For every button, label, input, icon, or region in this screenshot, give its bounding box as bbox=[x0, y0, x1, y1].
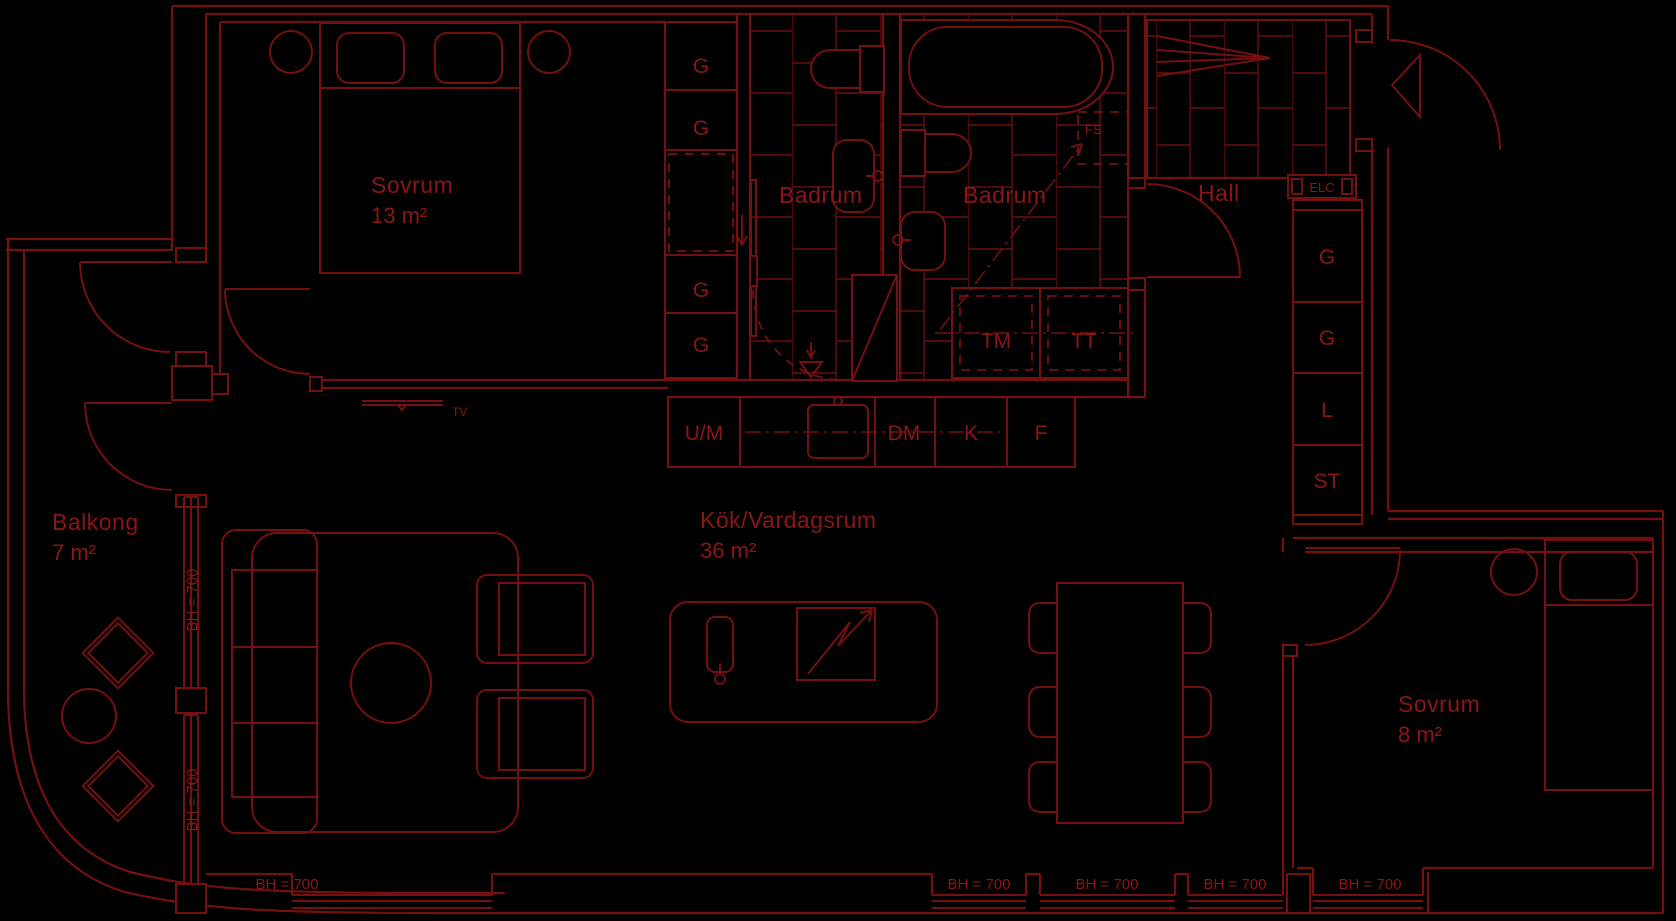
window bbox=[1040, 895, 1175, 908]
window-sill-label: BH = 700 bbox=[256, 876, 319, 893]
appliance-label-k: K bbox=[964, 422, 978, 445]
hall-floor bbox=[1147, 20, 1350, 178]
balcony-chair bbox=[83, 751, 154, 822]
window-sill-label: BH = 700 bbox=[1204, 876, 1267, 893]
sofa bbox=[222, 530, 317, 833]
balcony-table bbox=[62, 689, 116, 743]
closet-label-st: ST bbox=[1314, 470, 1341, 493]
closet-label-g: G bbox=[1319, 327, 1335, 350]
pillow bbox=[435, 33, 502, 83]
window-sill-label: BH = 700 bbox=[184, 569, 201, 632]
laundry-bench bbox=[935, 288, 1135, 378]
entrance-jamb-bottom bbox=[1356, 139, 1372, 151]
wall-pier bbox=[176, 688, 206, 713]
room-area-bedroom-small: 8 m² bbox=[1398, 722, 1442, 747]
bedroom1-door bbox=[225, 289, 310, 374]
room-label-balcony: Balkong bbox=[52, 509, 139, 535]
appliance-label-tt: TT bbox=[1071, 330, 1097, 353]
bedroom2-door bbox=[1305, 548, 1400, 645]
coffee-table bbox=[351, 643, 431, 723]
window bbox=[292, 895, 492, 908]
bath2-door-jamb-top bbox=[1128, 178, 1145, 188]
appliance-label-tm: TM bbox=[981, 330, 1011, 353]
open-shelf-dashed bbox=[669, 154, 733, 251]
bath2-door-jamb-bottom bbox=[1128, 278, 1145, 290]
pillow bbox=[337, 33, 404, 83]
cooktop bbox=[797, 608, 875, 680]
pillow bbox=[1560, 552, 1637, 600]
bedroom-main bbox=[225, 22, 757, 410]
window bbox=[1188, 895, 1283, 908]
bedroom2-door-jamb bbox=[1283, 645, 1297, 656]
double-bed bbox=[320, 23, 520, 273]
wall-pier bbox=[176, 248, 206, 262]
armchair bbox=[477, 690, 593, 778]
entrance-jamb-top bbox=[1356, 30, 1372, 42]
closet-label-g: G bbox=[693, 117, 709, 140]
window bbox=[932, 895, 1026, 908]
window-sill-label: BH = 700 bbox=[1076, 876, 1139, 893]
wall-pier bbox=[1287, 874, 1310, 913]
island-sink bbox=[707, 617, 733, 672]
wall-pier bbox=[212, 374, 228, 394]
window-sill-label: BH = 700 bbox=[948, 876, 1011, 893]
nightstand bbox=[528, 31, 570, 73]
closet-label-l: L bbox=[1321, 399, 1333, 422]
appliance-label-um: U/M bbox=[685, 422, 724, 445]
room-area-kitchen-living: 36 m² bbox=[700, 538, 756, 563]
toilet bbox=[901, 130, 971, 176]
nightstand bbox=[270, 31, 312, 73]
entrance-door bbox=[1390, 40, 1500, 150]
balcony-door-2 bbox=[85, 403, 172, 490]
window-sill-label: BH = 700 bbox=[1339, 876, 1402, 893]
dining-table bbox=[1057, 583, 1183, 823]
room-label-kitchen-living: Kök/Vardagsrum bbox=[700, 507, 877, 533]
closet-label-g: G bbox=[693, 55, 709, 78]
faucet-icon bbox=[715, 674, 725, 684]
room-label-hall: Hall bbox=[1198, 180, 1240, 206]
fan-unit-label: FS bbox=[1085, 122, 1102, 137]
appliance-label-f: F bbox=[1035, 422, 1048, 445]
kitchen-island bbox=[670, 602, 937, 722]
faucet-icon bbox=[834, 397, 842, 405]
room-area-balcony: 7 m² bbox=[52, 540, 96, 565]
floor-plan-drawing: Sovrum 13 m² Badrum Badrum Hall Balkong … bbox=[0, 0, 1676, 921]
wall-pier bbox=[176, 884, 206, 913]
wall-pier bbox=[172, 366, 212, 400]
bathtub bbox=[901, 20, 1113, 114]
bedroom1-door-jamb-right bbox=[310, 377, 322, 391]
balcony-door-1 bbox=[80, 262, 172, 352]
tv-label: TV bbox=[452, 405, 467, 419]
bedroom-small bbox=[1305, 540, 1653, 790]
window bbox=[1313, 895, 1423, 908]
kitchen-counter bbox=[668, 397, 1075, 467]
single-bed bbox=[1545, 540, 1653, 790]
room-label-bathroom-2: Badrum bbox=[963, 182, 1047, 208]
appliance-label-dm: DM bbox=[888, 422, 921, 445]
wall-pier bbox=[176, 352, 206, 366]
stool bbox=[1491, 549, 1537, 595]
rug bbox=[252, 533, 518, 832]
closet-label-g: G bbox=[693, 334, 709, 357]
room-label-bathroom-1: Badrum bbox=[779, 182, 863, 208]
balcony-chair bbox=[83, 618, 154, 689]
room-label-bedroom-small: Sovrum bbox=[1398, 691, 1480, 717]
floor-plan-page: Sovrum 13 m² Badrum Badrum Hall Balkong … bbox=[0, 0, 1676, 921]
window-sill-label: BH = 700 bbox=[184, 769, 201, 832]
closet-label-g: G bbox=[1319, 246, 1335, 269]
electrical-cabinet-label: ELC bbox=[1309, 180, 1334, 195]
bottom-windows bbox=[292, 895, 1423, 908]
room-area-bedroom-main: 13 m² bbox=[371, 203, 427, 228]
toilet bbox=[811, 46, 884, 92]
closet-label-g: G bbox=[693, 279, 709, 302]
armchair bbox=[477, 575, 593, 663]
tv bbox=[362, 401, 443, 410]
room-label-bedroom-main: Sovrum bbox=[371, 172, 453, 198]
shaft bbox=[852, 275, 897, 381]
